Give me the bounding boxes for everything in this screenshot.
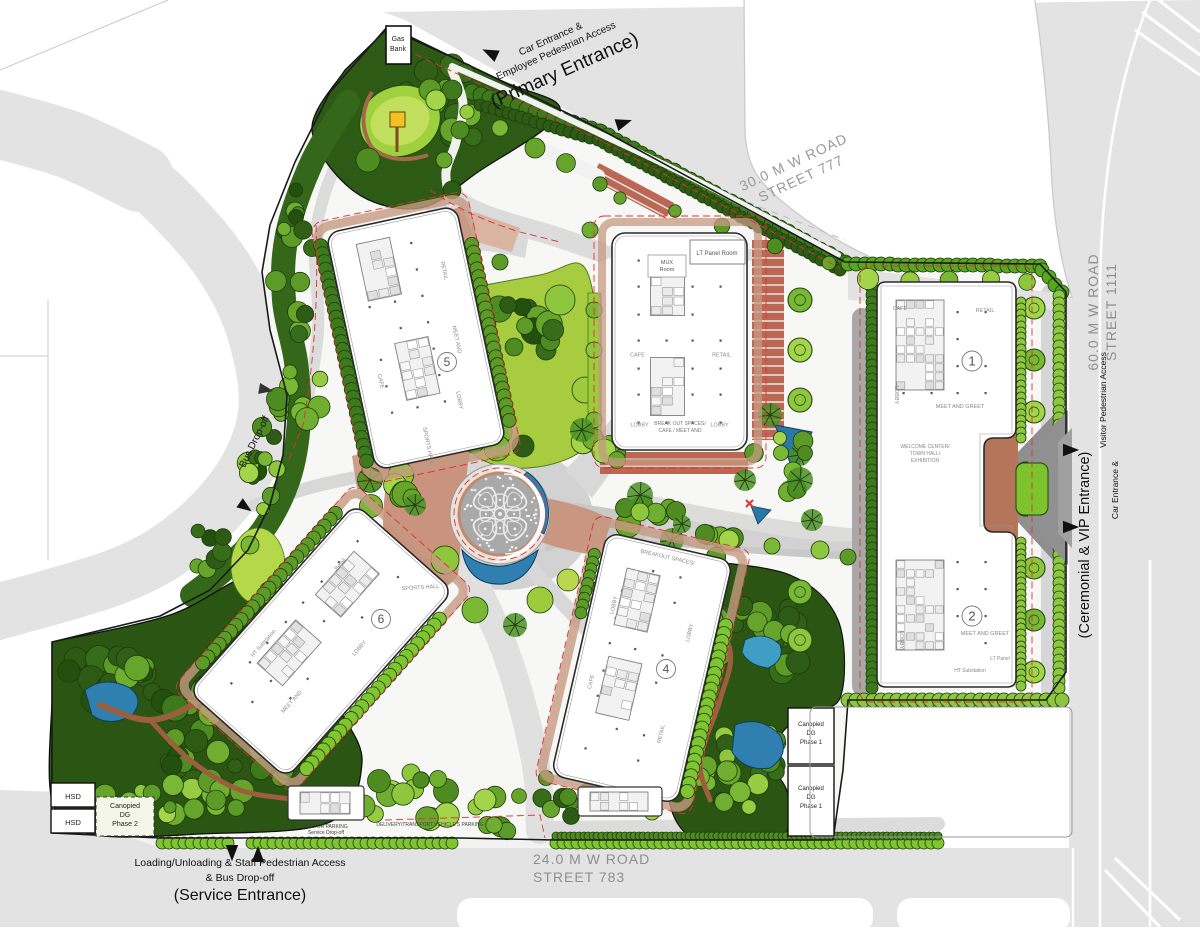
svg-text:WELCOME CENTER/: WELCOME CENTER/	[900, 444, 950, 450]
svg-text:DG: DG	[120, 812, 131, 819]
svg-text:HT Substation: HT Substation	[954, 668, 986, 674]
svg-text:MEET AND GREET: MEET AND GREET	[961, 631, 1010, 637]
svg-text:6: 6	[378, 612, 385, 626]
svg-text:Phase 2: Phase 2	[112, 821, 138, 828]
svg-text:LOBBY: LOBBY	[893, 386, 899, 405]
svg-text:4: 4	[663, 662, 670, 676]
svg-text:CAFE: CAFE	[893, 306, 908, 312]
svg-text:TOWN HALL/: TOWN HALL/	[910, 451, 941, 457]
svg-text:STREET 783: STREET 783	[533, 869, 625, 885]
svg-text:MUX: MUX	[661, 260, 674, 266]
svg-text:CAFE: CAFE	[630, 353, 645, 359]
svg-text:1: 1	[968, 354, 975, 369]
svg-text:Visitor Pedestrian Access: Visitor Pedestrian Access	[1098, 352, 1108, 448]
svg-text:LT Panel: LT Panel	[990, 656, 1010, 662]
svg-text:Canopied: Canopied	[798, 786, 824, 792]
svg-text:2: 2	[968, 609, 975, 624]
svg-text:(Service Entrance): (Service Entrance)	[174, 887, 307, 904]
svg-text:Bank: Bank	[390, 46, 406, 53]
svg-text:RETAIL: RETAIL	[976, 308, 995, 314]
svg-text:Room: Room	[660, 267, 675, 273]
svg-text:Car Entrance &: Car Entrance &	[1110, 461, 1120, 519]
svg-text:DG: DG	[807, 795, 816, 801]
svg-text:CAFE / MEET AND: CAFE / MEET AND	[659, 428, 702, 434]
svg-text:RETAIL: RETAIL	[712, 353, 731, 359]
svg-text:Loading/Unloading & Staff Pede: Loading/Unloading & Staff Pedestrian Acc…	[134, 857, 345, 869]
svg-text:Gas: Gas	[392, 36, 405, 43]
svg-text:MEET AND GREET: MEET AND GREET	[936, 404, 985, 410]
svg-text:HSD: HSD	[65, 818, 81, 827]
svg-text:& Bus Drop-off: & Bus Drop-off	[206, 872, 275, 884]
svg-text:24.0 M W ROAD: 24.0 M W ROAD	[533, 851, 650, 867]
svg-text:BREAK OUT SPACES/: BREAK OUT SPACES/	[654, 421, 706, 427]
svg-text:Canopied: Canopied	[110, 803, 140, 810]
svg-text:EXHIBITION: EXHIBITION	[911, 458, 940, 464]
svg-text:DELIVERY/TRANSPORT VEHICLE'S P: DELIVERY/TRANSPORT VEHICLE'S PARKING	[376, 822, 483, 828]
svg-text:LOBBY: LOBBY	[898, 631, 904, 650]
svg-text:Service Drop-off: Service Drop-off	[308, 830, 345, 836]
svg-text:5: 5	[444, 355, 451, 369]
svg-text:Canopied: Canopied	[798, 722, 824, 728]
svg-text:LT Panel Room: LT Panel Room	[696, 251, 737, 257]
svg-text:Phase 1: Phase 1	[800, 804, 823, 810]
svg-text:Phase 1: Phase 1	[800, 740, 823, 746]
svg-text:DG: DG	[807, 731, 816, 737]
svg-text:HSD: HSD	[65, 792, 81, 801]
svg-text:(Ceremonial & VIP Entrance): (Ceremonial & VIP Entrance)	[1077, 452, 1093, 639]
svg-text:LOBBY: LOBBY	[630, 423, 649, 429]
svg-text:STREET 1111: STREET 1111	[1103, 263, 1119, 361]
svg-text:LOBBY: LOBBY	[710, 423, 729, 429]
